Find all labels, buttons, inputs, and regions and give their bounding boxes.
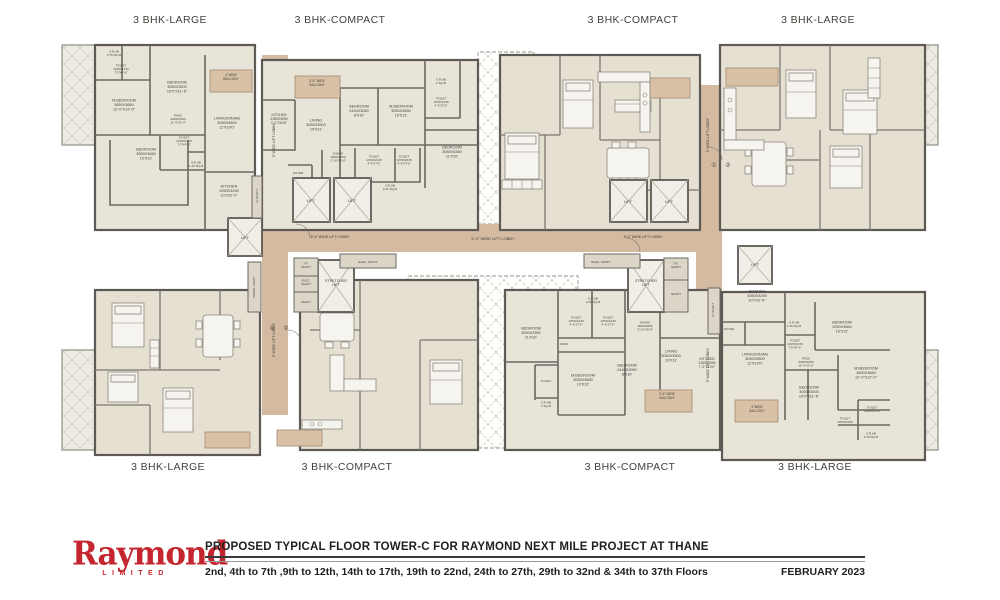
- unit-top-right-large: [720, 45, 925, 230]
- room-label: LIFT: [665, 199, 674, 204]
- room-label: BEDROOM3050X350010'0"X11'-6": [799, 386, 820, 399]
- room-label: ②: [283, 325, 288, 332]
- room-label: ①: [269, 325, 274, 332]
- room-label: ELEC. SHAFT: [358, 260, 378, 264]
- room-label: LV SHAFT: [711, 303, 715, 317]
- unit-type-label: 3 BHK-COMPACT: [588, 14, 679, 26]
- plan-title: PROPOSED TYPICAL FLOOR TOWER-C FOR RAYMO…: [205, 541, 865, 553]
- balcony: [205, 432, 250, 448]
- room-label: FOYER: [293, 171, 304, 175]
- room-label: LIFT: [348, 198, 357, 203]
- wardrobe-icon: [868, 58, 880, 98]
- balcony: [726, 68, 778, 86]
- room-label: LIFT: [624, 199, 633, 204]
- room-label: 8'-9" WIDE LIFT LOBBY: [624, 235, 663, 239]
- room-label: LIFT: [307, 198, 316, 203]
- balcony: [277, 430, 322, 446]
- dining-table-icon: [196, 315, 240, 357]
- title-block: PROPOSED TYPICAL FLOOR TOWER-C FOR RAYMO…: [205, 541, 865, 578]
- bed-icon: [830, 146, 862, 188]
- room-label: ②: [725, 162, 730, 169]
- room-label: BEDROOM3050X350010'0"X11'-6": [167, 81, 188, 94]
- unit-bottom-right-large: [722, 292, 925, 460]
- room-label: KITCHEN3050X329010'X10'-9": [747, 290, 766, 303]
- room-label: SHAFT: [671, 292, 681, 296]
- floors-note: 2nd, 4th to 7th ,9th to 12th, 14th to 17…: [205, 566, 708, 578]
- unit-type-label: 3 BHK-COMPACT: [302, 461, 393, 473]
- room-label: 3'-6" WIDEBALCONY: [309, 79, 325, 87]
- room-label: KITCHEN2180X30507'-2"X10'0": [698, 357, 716, 369]
- deck-hatch: [62, 350, 95, 450]
- bed-icon: [112, 303, 144, 347]
- unit-bottom-left-large: [95, 290, 260, 455]
- balcony: [650, 78, 690, 98]
- unit-type-label: 3 BHK-LARGE: [778, 461, 852, 473]
- wardrobe-icon: [502, 180, 542, 189]
- unit-type-label: 3 BHK-LARGE: [133, 14, 207, 26]
- unit-bottom-mid-right-compact: [505, 290, 720, 450]
- title-divider: [205, 556, 865, 562]
- bed-icon: [505, 133, 539, 179]
- room-label: PASS: [560, 342, 568, 346]
- kitchen-counter-icon: [302, 420, 342, 429]
- bed-icon: [163, 388, 193, 432]
- room-label: LIFT: [751, 262, 760, 267]
- room-label: FOYER: [724, 327, 735, 331]
- footer: Raymond LIMITED PROPOSED TYPICAL FLOOR T…: [0, 537, 1000, 600]
- room-label: TOILET: [541, 379, 552, 383]
- room-label: 5' WIDE LIFT LOBBY: [706, 117, 710, 152]
- floor-plan-sheet: LIFTLIFTLIFTLIFTLIFTLIFT8'-9" WIDE LIFT …: [0, 0, 1000, 600]
- unit-type-label: 3 BHK-LARGE: [131, 461, 205, 473]
- room-label: KITCHEN2180X30507'-2"X10'0": [270, 113, 288, 125]
- room-label: 3'-6" WIDEBALCONY: [659, 392, 675, 400]
- room-label: 5'-9" WIDE LIFT LOBBY: [471, 236, 515, 241]
- room-label: SHAFT: [301, 300, 311, 304]
- room-label: 8'-9" WIDE LIFT LOBBY: [311, 235, 350, 239]
- dining-table-icon: [607, 142, 649, 184]
- room-label: S.R.AB1 SQ.M: [541, 400, 552, 408]
- bed-icon: [786, 70, 816, 118]
- bed-icon: [563, 80, 593, 128]
- room-label: M.BEDROOM3650X366012'-0"X12'-0": [854, 367, 878, 380]
- floor-plan-svg: LIFTLIFTLIFTLIFTLIFTLIFT8'-9" WIDE LIFT …: [0, 0, 1000, 537]
- date-label: FEBRUARY 2023: [781, 566, 865, 578]
- room-label: KITCHEN3050X329010'X10'-9": [219, 185, 238, 198]
- unit-type-label: 3 BHK-COMPACT: [295, 14, 386, 26]
- bed-icon: [108, 372, 138, 402]
- room-label: LV SHAFT: [255, 189, 259, 203]
- wardrobe-icon: [150, 340, 159, 368]
- room-label: M.BEDROOM3650X366012'-0"X12'-0": [112, 99, 136, 112]
- room-label: PRESS. SHAFT: [252, 276, 256, 298]
- room-label: ELEC. SHAFT: [591, 260, 611, 264]
- room-label: ELEC.SHAFT: [301, 278, 311, 286]
- room-label: ①: [711, 162, 716, 169]
- room-label: S.R.AB1 SQ.M: [436, 77, 447, 85]
- bed-icon: [430, 360, 462, 404]
- unit-type-label: 3 BHK-COMPACT: [585, 461, 676, 473]
- unit-type-label: 3 BHK-LARGE: [781, 14, 855, 26]
- deck-hatch: [62, 45, 95, 145]
- room-label: LIFT: [241, 235, 250, 240]
- raymond-wordmark: Raymond: [72, 538, 194, 570]
- room-label: 5' WIDE LIFT LOBBY: [272, 122, 276, 157]
- raymond-logo: Raymond LIMITED: [72, 539, 194, 577]
